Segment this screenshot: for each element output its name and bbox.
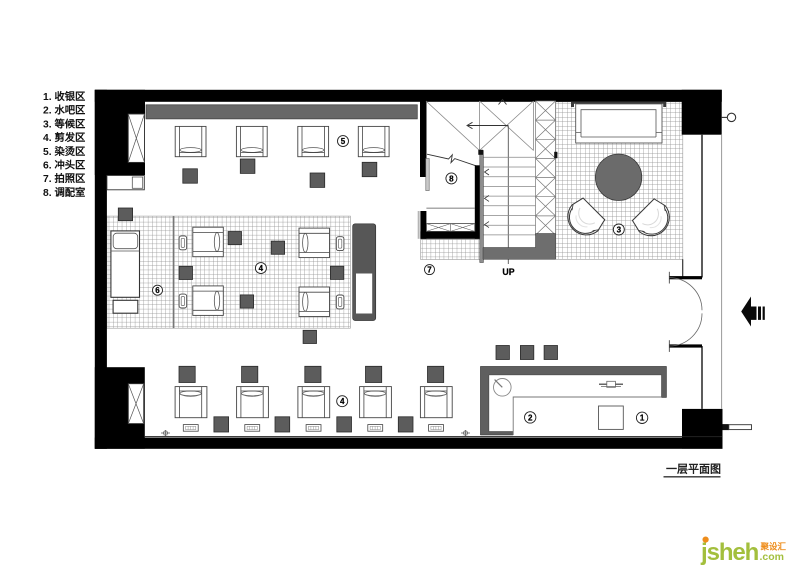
svg-text:5: 5 bbox=[341, 137, 346, 146]
svg-text:8: 8 bbox=[449, 174, 454, 183]
svg-text:1. 收银区: 1. 收银区 bbox=[43, 90, 86, 103]
svg-text:4. 剪发区: 4. 剪发区 bbox=[43, 131, 86, 144]
svg-text:1: 1 bbox=[640, 414, 645, 423]
svg-text:4: 4 bbox=[340, 397, 345, 406]
svg-text:3. 等候区: 3. 等候区 bbox=[43, 117, 86, 130]
svg-text:一层平面图: 一层平面图 bbox=[666, 463, 721, 476]
svg-text:jsheh: jsheh bbox=[700, 539, 759, 565]
svg-text:3: 3 bbox=[617, 225, 622, 234]
svg-text:.com: .com bbox=[760, 551, 785, 563]
svg-text:8. 调配室: 8. 调配室 bbox=[43, 186, 85, 199]
svg-text:7. 拍照区: 7. 拍照区 bbox=[43, 172, 86, 185]
svg-text:2. 水吧区: 2. 水吧区 bbox=[43, 104, 86, 117]
svg-text:5. 染烫区: 5. 染烫区 bbox=[43, 145, 86, 158]
svg-text:7: 7 bbox=[427, 265, 432, 274]
svg-text:聚设汇: 聚设汇 bbox=[760, 542, 787, 552]
svg-text:UP: UP bbox=[502, 267, 514, 277]
svg-text:6. 冲头区: 6. 冲头区 bbox=[43, 159, 86, 172]
svg-text:2: 2 bbox=[528, 413, 533, 422]
svg-text:6: 6 bbox=[155, 286, 160, 295]
svg-text:4: 4 bbox=[259, 264, 264, 273]
